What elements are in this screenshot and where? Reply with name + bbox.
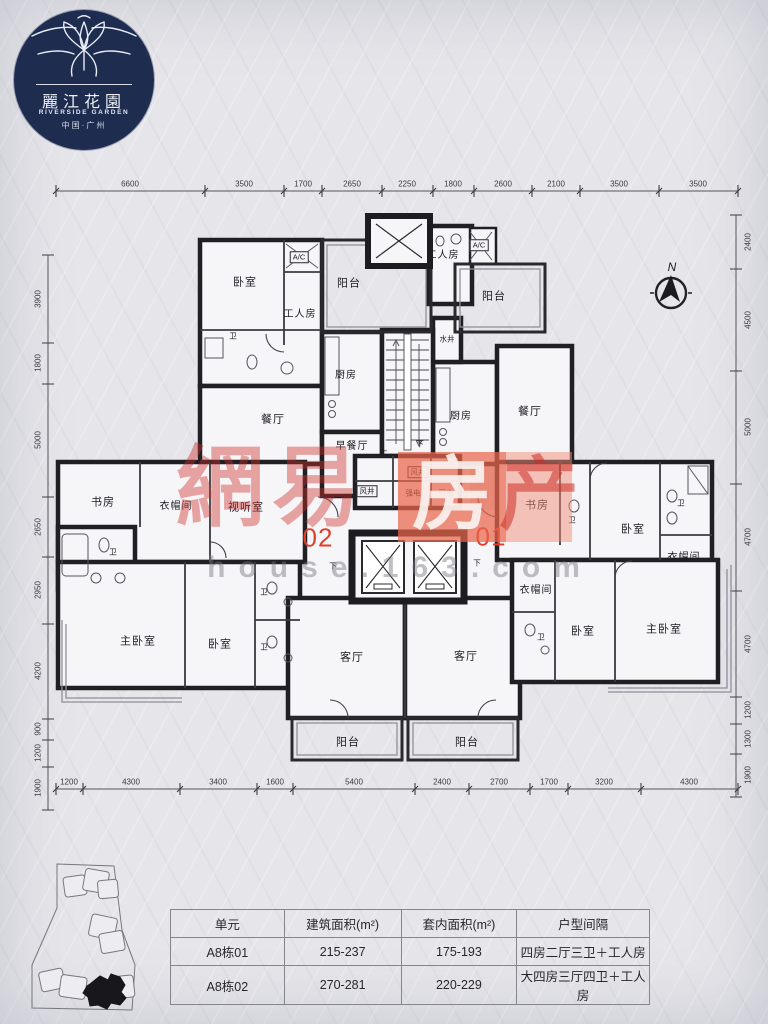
room-label-servant-room: 工人房 [427, 251, 460, 261]
room-label-air-shaft: 风井 [408, 466, 429, 478]
unit-number-01: 01 [476, 522, 507, 553]
dim-top: 2100 [547, 180, 565, 189]
cell-net-area: 175-193 [401, 938, 517, 966]
room-label-dining: 餐厅 [261, 415, 285, 426]
room-label-bedroom: 卧室 [621, 525, 645, 536]
dim-right: 4500 [744, 311, 753, 329]
dim-left: 1900 [34, 779, 43, 797]
compass-north-label: N [668, 260, 677, 274]
room-label-cloakroom: 衣帽间 [160, 502, 193, 512]
cell-unit: A8栋02 [171, 966, 285, 1005]
room-label-kitchen: 厨房 [335, 371, 357, 381]
table-row: A8栋01 215-237 175-193 四房二厅三卫＋工人房 [171, 938, 650, 966]
unit-number-02: 02 [303, 523, 334, 554]
dim-bottom: 2700 [490, 778, 508, 787]
dim-left: 900 [34, 722, 43, 735]
dim-top: 6600 [121, 180, 139, 189]
room-label-bedroom: 卧室 [571, 627, 595, 638]
dim-bottom: 4300 [680, 778, 698, 787]
dim-bottom: 2400 [433, 778, 451, 787]
room-label-av-room: 视听室 [228, 503, 264, 514]
dim-top: 3500 [689, 180, 707, 189]
room-label-breakfast: 早餐厅 [336, 442, 369, 452]
site-key-map [32, 864, 135, 1010]
room-label-bath: 卫 [109, 548, 117, 556]
cell-gross-area: 270-281 [284, 966, 401, 1005]
dim-right: 1200 [744, 701, 753, 719]
room-label-balcony: 阳台 [336, 738, 360, 749]
dim-top: 2650 [343, 180, 361, 189]
room-label-cloakroom: 衣帽间 [520, 586, 553, 596]
table-row: A8栋02 270-281 220-229 大四房三厅四卫＋工人房 [171, 966, 650, 1005]
col-header-net-area: 套内面积(m²) [401, 910, 517, 938]
room-label-servant-room: 工人房 [284, 310, 317, 320]
dim-left: 3900 [34, 290, 43, 308]
dim-top: 1800 [444, 180, 462, 189]
room-label-study: 书房 [91, 498, 115, 509]
room-label-bath: 卫 [677, 499, 685, 507]
dim-bottom: 1600 [266, 778, 284, 787]
room-label-study: 书房 [525, 501, 549, 512]
dim-right: 1900 [744, 766, 753, 784]
col-header-unit: 单元 [171, 910, 285, 938]
unit-spec-table: 单元 建筑面积(m²) 套内面积(m²) 户型间隔 A8栋01 215-237 … [170, 909, 650, 1005]
dim-left: 4200 [34, 662, 43, 680]
dim-top: 2250 [398, 180, 416, 189]
room-label-bedroom: 卧室 [208, 640, 232, 651]
room-label-bath: 卫 [260, 588, 268, 596]
dim-bottom: 4300 [122, 778, 140, 787]
dim-right: 5000 [744, 418, 753, 436]
dim-right: 2400 [744, 233, 753, 251]
dim-left: 1800 [34, 354, 43, 372]
room-label-weak-electric: 弱电 [439, 489, 454, 497]
room-label-kitchen: 厨房 [450, 412, 472, 422]
scanned-floorplan-page: 麗江花園 RIVERSIDE GARDEN 中国·广州 6600 3500 17… [0, 0, 768, 1024]
dim-bottom: 1700 [540, 778, 558, 787]
col-header-gross-area: 建筑面积(m²) [284, 910, 401, 938]
lily-flower-icon [14, 10, 154, 84]
walls-structural [58, 226, 718, 718]
room-label-bath: 卫 [260, 643, 268, 651]
riverside-garden-logo: 麗江花園 RIVERSIDE GARDEN 中国·广州 [14, 10, 154, 150]
room-label-ac: A/C [470, 239, 489, 251]
dim-left: 2950 [34, 581, 43, 599]
col-header-layout: 户型间隔 [517, 910, 650, 938]
cell-layout: 大四房三厅四卫＋工人房 [517, 966, 650, 1005]
room-label-balcony: 阳台 [455, 738, 479, 749]
logo-name-en: RIVERSIDE GARDEN [14, 109, 154, 116]
dim-right: 1300 [744, 730, 753, 748]
stair-label-down: 下 [473, 559, 481, 567]
room-label-living: 客厅 [454, 652, 478, 663]
dim-bottom: 3200 [595, 778, 613, 787]
elevator-top [368, 216, 430, 266]
dim-left: 1200 [34, 744, 43, 762]
dim-top: 3500 [610, 180, 628, 189]
stair-label-down: 下 [416, 440, 424, 448]
room-label-cloakroom: 衣帽间 [668, 553, 701, 563]
table-header-row: 单元 建筑面积(m²) 套内面积(m²) 户型间隔 [171, 910, 650, 938]
cell-gross-area: 215-237 [284, 938, 401, 966]
cell-layout: 四房二厅三卫＋工人房 [517, 938, 650, 966]
room-label-bath: 卫 [229, 332, 237, 340]
dim-right: 4700 [744, 528, 753, 546]
room-label-living: 客厅 [340, 653, 364, 664]
room-label-dining: 餐厅 [518, 407, 542, 418]
north-compass-icon [650, 275, 692, 308]
dim-top: 3500 [235, 180, 253, 189]
floorplan-drawing [0, 0, 768, 1024]
stair-label-up: 上 [380, 448, 388, 456]
highlighted-building [83, 974, 126, 1009]
logo-location: 中国·广州 [14, 120, 154, 131]
room-label-ac: A/C [290, 251, 309, 263]
elevator-core [352, 533, 464, 601]
dim-left: 2650 [34, 518, 43, 536]
dim-right: 4700 [744, 635, 753, 653]
stair-label-down: 下 [329, 562, 337, 570]
dim-bottom: 3400 [209, 778, 227, 787]
cell-unit: A8栋01 [171, 938, 285, 966]
room-label-bath: 卫 [568, 516, 576, 524]
dim-bottom: 1200 [60, 778, 78, 787]
dim-bottom: 5400 [345, 778, 363, 787]
room-label-bath: 卫 [537, 633, 545, 641]
logo-divider [36, 84, 132, 85]
room-label-master-bedroom: 主卧室 [646, 625, 682, 636]
room-label-balcony: 阳台 [482, 292, 506, 303]
cell-net-area: 220-229 [401, 966, 517, 1005]
dim-top: 1700 [294, 180, 312, 189]
dim-left: 5000 [34, 431, 43, 449]
room-label-air-shaft: 风井 [357, 485, 378, 497]
room-label-strong-electric: 强电 [406, 489, 421, 497]
room-label-master-bedroom: 主卧室 [120, 637, 156, 648]
dim-top: 2600 [494, 180, 512, 189]
room-label-water-shaft: 水井 [440, 335, 455, 343]
room-label-bedroom: 卧室 [233, 278, 257, 289]
room-label-balcony: 阳台 [337, 279, 361, 290]
